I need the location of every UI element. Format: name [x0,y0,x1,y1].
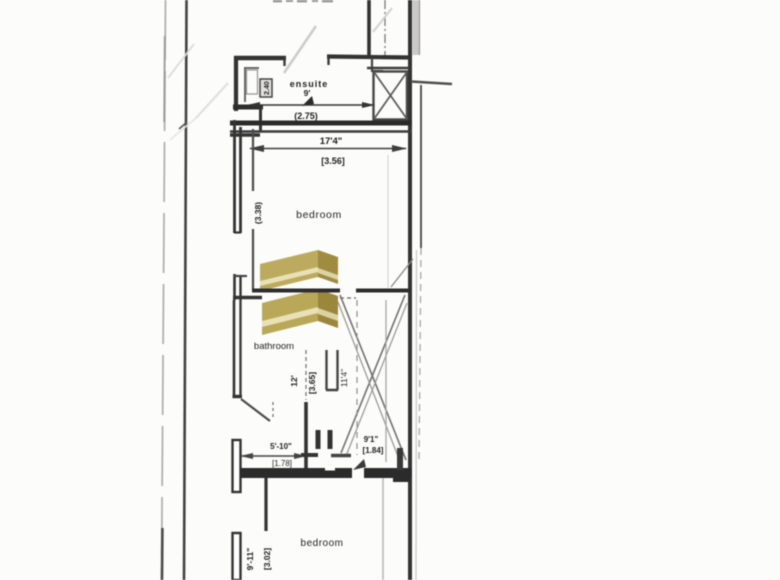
svg-text:[3.56]: [3.56] [321,156,345,166]
svg-text:17'4": 17'4" [320,136,343,147]
svg-text:bedroom: bedroom [301,538,344,549]
svg-text:11'4": 11'4" [339,369,349,387]
svg-text:5'-10": 5'-10" [270,442,292,451]
svg-text:9'1": 9'1" [364,435,379,444]
svg-text:[1.78]: [1.78] [272,459,292,468]
svg-text:bedroom: bedroom [296,209,342,221]
svg-text:[3.65]: [3.65] [307,372,317,394]
svg-text:[3.02]: [3.02] [262,548,272,570]
svg-text:[1.84]: [1.84] [363,446,384,455]
svg-text:2.40: 2.40 [264,81,271,95]
svg-text:12': 12' [289,375,299,386]
svg-text:9': 9' [304,88,311,98]
svg-text:9'-11": 9'-11" [245,548,255,571]
svg-text:(3.38): (3.38) [253,202,263,224]
svg-text:bathroom: bathroom [254,341,294,352]
svg-text:(2.75): (2.75) [294,111,318,121]
